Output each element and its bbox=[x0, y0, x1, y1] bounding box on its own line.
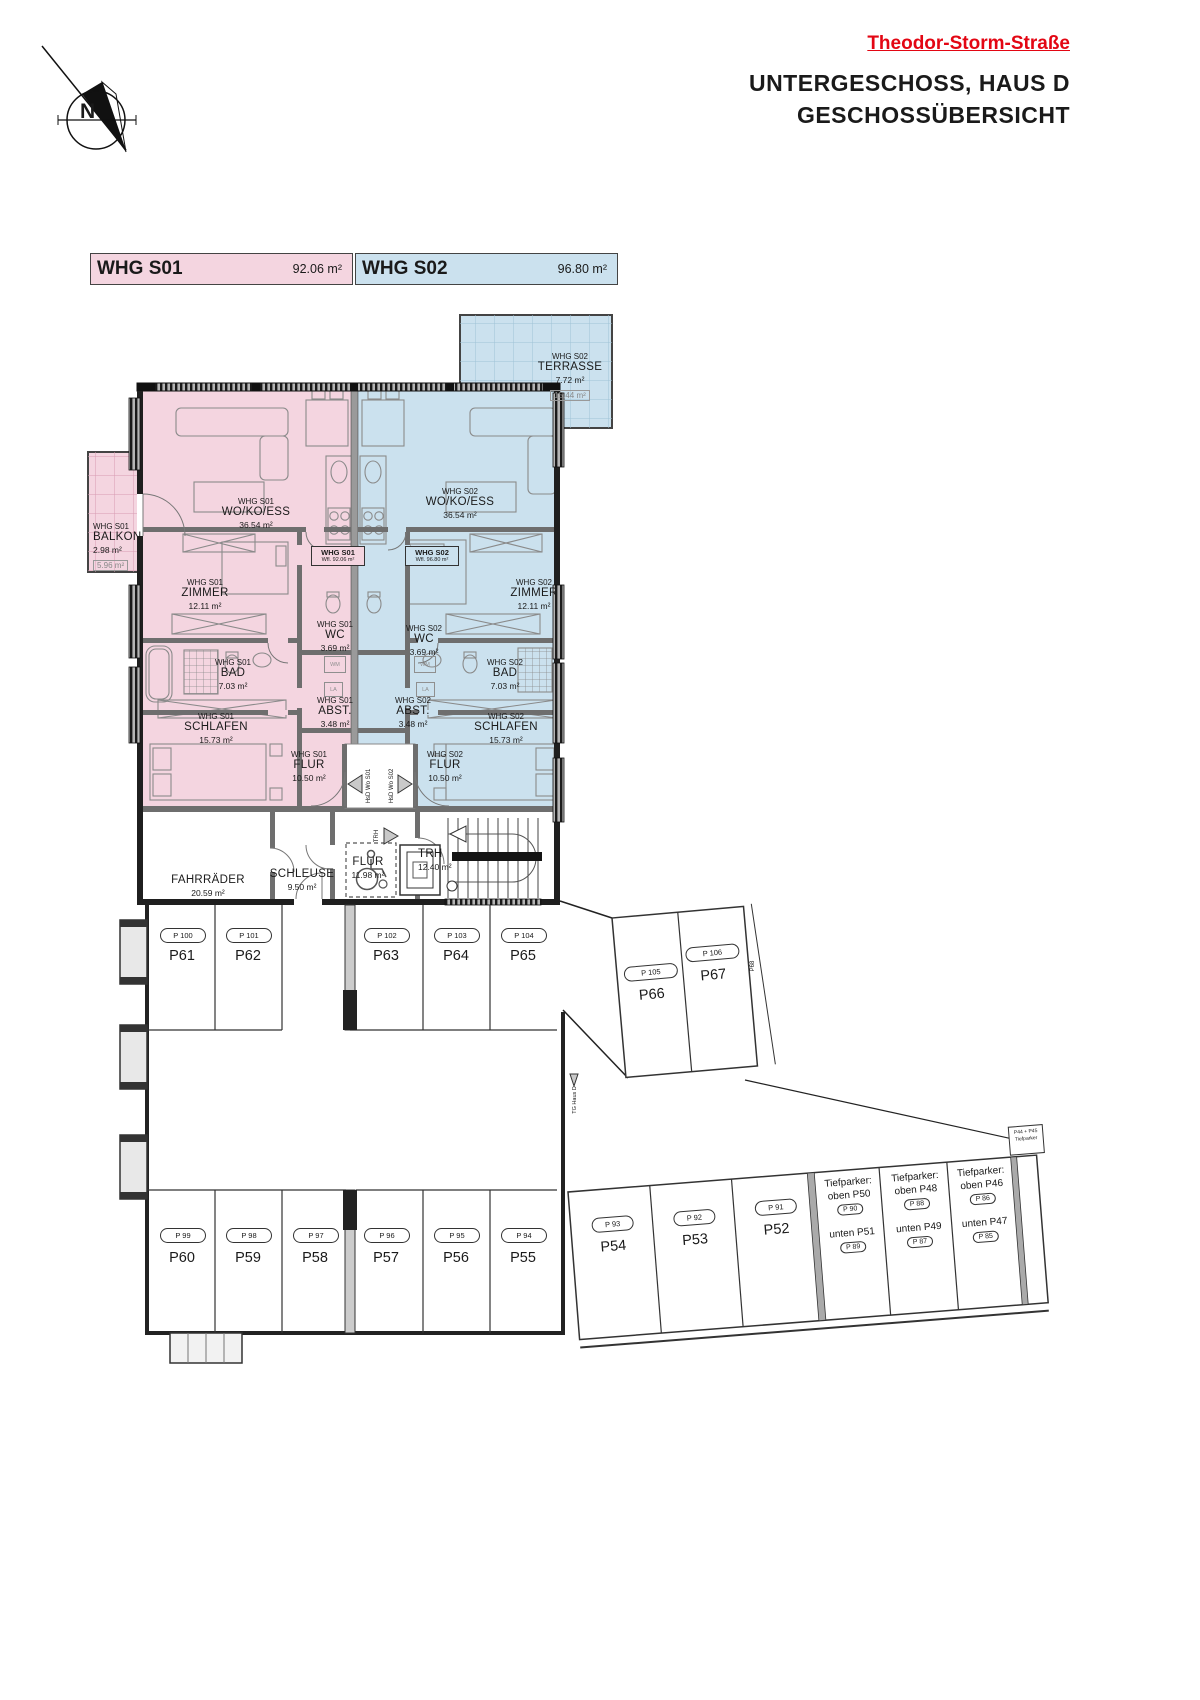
marker-tg-haus-d: TG Haus D bbox=[572, 1086, 578, 1114]
legend-s02-name: WHG S02 bbox=[362, 258, 448, 280]
arrow-trh bbox=[384, 828, 398, 844]
parking-stall-p67: P67 bbox=[687, 965, 740, 985]
parking-code-p56: P 95 bbox=[434, 1228, 480, 1243]
terrace-half-area: 15.44 m² bbox=[550, 390, 590, 401]
wfl-box-s01: WHG S01 Wfl. 92.06 m² bbox=[311, 546, 365, 566]
marker-trh: TRH bbox=[374, 830, 380, 842]
parking-stall-p58: P58 bbox=[293, 1250, 337, 1266]
parking-stall-p54: P54 bbox=[593, 1237, 634, 1256]
parking-stall-p65: P65 bbox=[501, 948, 545, 964]
legend-whg-s01: WHG S01 92.06 m² bbox=[90, 253, 353, 285]
parking-code-p67: P 106 bbox=[685, 943, 740, 963]
marker-hsd-wo-s02: HsD Wo S02 bbox=[389, 769, 395, 804]
parking-stall-p62: P62 bbox=[226, 948, 270, 964]
page-title-line2: GESCHOSSÜBERSICHT bbox=[797, 102, 1070, 129]
wm-box-s01: WM bbox=[324, 656, 346, 673]
room-label-s01-wc: WHG S01WC3.69 m² bbox=[307, 620, 363, 653]
room-label-s02-schlafen: WHG S02SCHLAFEN15.73 m² bbox=[450, 712, 562, 745]
legend-s02-area: 96.80 m² bbox=[558, 262, 607, 276]
legend-s01-area: 92.06 m² bbox=[293, 262, 342, 276]
terrace-label: WHG S02 TERRASSE 7.72 m² 15.44 m² bbox=[532, 352, 608, 404]
room-label-s01-abst: WHG S01ABST.3.48 m² bbox=[304, 696, 366, 729]
parking-ne-labels: P 105 P66 P 106 P67 bbox=[612, 906, 757, 1077]
parking-stall-p63: P63 bbox=[364, 948, 408, 964]
parking-stall-p60: P60 bbox=[160, 1250, 204, 1266]
parking-code-p63: P 102 bbox=[364, 928, 410, 943]
room-label-s01-wohnen: WHG S01WO/KO/ESS36.54 m² bbox=[200, 497, 312, 530]
parking-code-p54: P 93 bbox=[591, 1215, 634, 1233]
legend-whg-s02: WHG S02 96.80 m² bbox=[355, 253, 618, 285]
balcony-label: WHG S01 BALKON 2.98 m² 5.96 m² bbox=[93, 522, 153, 574]
room-label-trh: TRH12.40 m² bbox=[418, 848, 478, 872]
compass-n-label: N bbox=[80, 100, 95, 124]
parking-code-p53: P 92 bbox=[673, 1209, 716, 1227]
parking-code-p90: P 90 bbox=[837, 1203, 864, 1216]
parking-code-p85: P 85 bbox=[972, 1230, 999, 1243]
parking-stall-p52: P52 bbox=[756, 1220, 797, 1239]
room-label-s02-bad: WHG S02BAD7.03 m² bbox=[470, 658, 540, 691]
room-label-s01-zimmer: WHG S01ZIMMER12.11 m² bbox=[150, 578, 260, 611]
room-label-s02-wc: WHG S02WC3.69 m² bbox=[396, 624, 452, 657]
parking-stall-p57: P57 bbox=[364, 1250, 408, 1266]
parking-code-p65: P 104 bbox=[501, 928, 547, 943]
wfl-box-s02: WHG S02 Wfl. 96.80 m² bbox=[405, 546, 459, 566]
la-box-s01: LA bbox=[324, 682, 343, 697]
room-label-s02-wohnen: WHG S02WO/KO/ESS36.54 m² bbox=[404, 487, 516, 520]
parking-code-p87: P 87 bbox=[906, 1236, 933, 1249]
parking-code-p52: P 91 bbox=[754, 1198, 797, 1216]
room-label-s01-bad: WHG S01BAD7.03 m² bbox=[198, 658, 268, 691]
parking-code-p59: P 98 bbox=[226, 1228, 272, 1243]
parking-code-p86: P 86 bbox=[969, 1192, 996, 1205]
parking-stall-p64: P64 bbox=[434, 948, 478, 964]
parking-code-p89: P 89 bbox=[840, 1241, 867, 1254]
parking-code-p66: P 105 bbox=[623, 962, 678, 982]
arrow-tg-haus-d bbox=[570, 1074, 578, 1086]
parking-stall-p55: P55 bbox=[501, 1250, 545, 1266]
parking-stall-p56: P56 bbox=[434, 1250, 478, 1266]
parking-code-p62: P 101 bbox=[226, 928, 272, 943]
street-title: Theodor-Storm-Straße bbox=[867, 33, 1070, 55]
room-label-s02-abst: WHG S02ABST.3.48 m² bbox=[382, 696, 444, 729]
room-label-fahrraeder: FAHRRÄDER20.59 m² bbox=[152, 874, 264, 898]
parking-stall-p59: P59 bbox=[226, 1250, 270, 1266]
la-box-s02: LA bbox=[416, 682, 435, 697]
garage-left-windows bbox=[120, 920, 242, 1363]
floor-plan-page: Theodor-Storm-Straße UNTERGESCHOSS, HAUS… bbox=[0, 0, 1200, 1700]
marker-hsd-wo-s01: HsD Wo S01 bbox=[366, 769, 372, 804]
legend-s01-name: WHG S01 bbox=[97, 258, 183, 280]
parking-code-p57: P 96 bbox=[364, 1228, 410, 1243]
parking-row-bottom bbox=[147, 1190, 557, 1333]
parking-code-p88: P 88 bbox=[903, 1198, 930, 1211]
room-label-s02-flur: WHG S02FLUR10.50 m² bbox=[400, 750, 490, 783]
parking-code-p60: P 99 bbox=[160, 1228, 206, 1243]
room-label-s01-schlafen: WHG S01SCHLAFEN15.73 m² bbox=[160, 712, 272, 745]
tiefparker-stall-p46-p47: Tiefparker: oben P46 P 86 unten P47 P 85 bbox=[951, 1163, 1015, 1245]
page-title-line1: UNTERGESCHOSS, HAUS D bbox=[749, 70, 1070, 97]
room-label-s01-flur: WHG S01FLUR10.50 m² bbox=[264, 750, 354, 783]
parking-stall-p61: P61 bbox=[160, 948, 204, 964]
room-label-flur-common: FLUR11.98 m² bbox=[338, 856, 398, 880]
parking-row-top bbox=[147, 905, 557, 1030]
parking-stall-p53: P53 bbox=[675, 1231, 716, 1250]
tiefparker-stall-p48-p49: Tiefparker: oben P48 P 88 unten P49 P 87 bbox=[883, 1168, 951, 1250]
parking-code-p58: P 97 bbox=[293, 1228, 339, 1243]
tiefparker-stall-p50-p51: Tiefparker: oben P50 P 90 unten P51 P 89 bbox=[818, 1174, 884, 1256]
parking-code-p55: P 94 bbox=[501, 1228, 547, 1243]
balcony-half-area: 5.96 m² bbox=[93, 560, 128, 571]
room-label-s02-zimmer: WHG S02ZIMMER12.11 m² bbox=[478, 578, 590, 611]
parking-code-p61: P 100 bbox=[160, 928, 206, 943]
marker-p68: P68 bbox=[750, 961, 756, 972]
north-arrow-icon bbox=[42, 46, 136, 152]
wm-box-s02: WM bbox=[414, 656, 436, 673]
tiefparker-note: P44 + P45 Tiefparker bbox=[1009, 1128, 1044, 1144]
room-label-schleuse: SCHLEUSE9.50 m² bbox=[262, 868, 342, 892]
parking-code-p64: P 103 bbox=[434, 928, 480, 943]
parking-stall-p66: P66 bbox=[625, 985, 678, 1005]
